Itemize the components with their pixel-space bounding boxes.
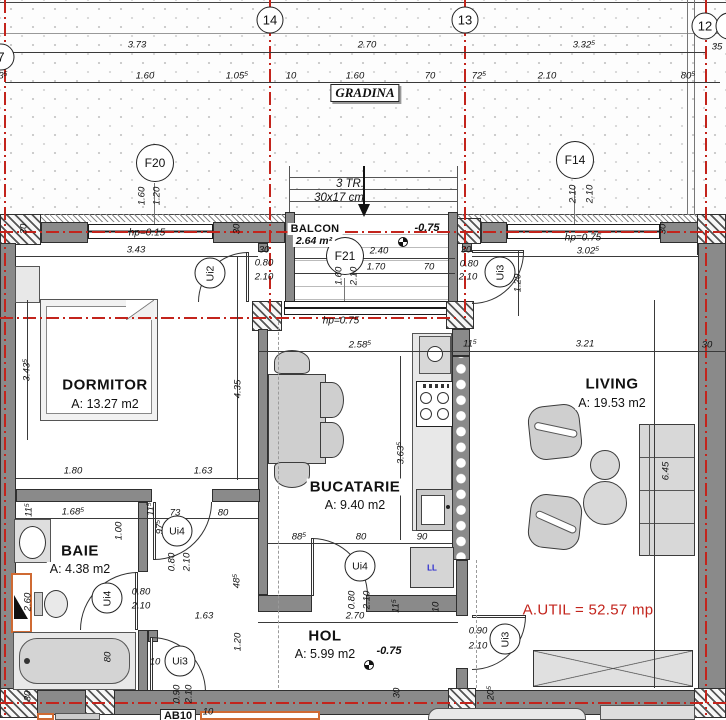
window-F21 xyxy=(284,301,448,315)
dim-label: 11⁵ xyxy=(391,599,402,613)
dim-label: 10 xyxy=(286,71,297,82)
grid-bubble-label: 12 xyxy=(698,19,712,34)
door-tag-label: Ui4 xyxy=(352,560,368,572)
garden-fence-line xyxy=(687,0,688,215)
door-tag-Ui4: Ui4 xyxy=(92,583,123,614)
level-marker xyxy=(398,237,408,247)
kitchen-sink-basin xyxy=(421,495,445,525)
note-ab: AB10 xyxy=(160,709,196,720)
dim-label: 0.80 xyxy=(132,587,151,598)
dim-label: 30 xyxy=(232,224,243,235)
dim-label: 30 xyxy=(392,688,403,699)
dim-line xyxy=(16,478,258,479)
dim-label: 0.90 xyxy=(172,685,183,704)
burner xyxy=(420,408,432,420)
room-name: LIVING xyxy=(582,376,641,393)
insulation-band xyxy=(458,214,726,222)
dim-label: 2.10 xyxy=(349,267,360,286)
tv-cabinet xyxy=(533,650,693,687)
dim-label: 20⁵ xyxy=(486,686,497,701)
dim-label: 1.20 xyxy=(233,633,244,652)
red-axis-bottom-wall xyxy=(0,702,726,704)
side-table xyxy=(590,450,620,480)
dim-line xyxy=(258,351,726,352)
room-name: DORMITOR xyxy=(59,377,150,394)
burner xyxy=(420,392,432,404)
dim-label: 30 xyxy=(19,224,30,235)
room-area: A: 19.53 m2 xyxy=(575,396,648,410)
faucet-dot xyxy=(446,505,450,509)
dim-label: 35 xyxy=(712,42,723,53)
dim-label: 30 xyxy=(259,245,270,256)
room-area: A: 13.27 m2 xyxy=(68,397,141,411)
door-tag-Ui2: Ui2 xyxy=(195,258,226,289)
wall-pier xyxy=(446,301,474,329)
armchair-cushion xyxy=(534,510,577,535)
exterior-wall-right xyxy=(698,243,726,692)
dim-label: 10 xyxy=(431,602,442,613)
dim-label: 72⁵ xyxy=(472,71,487,82)
dim-label: 70 xyxy=(425,71,436,82)
dim-label: 2.10 xyxy=(184,685,195,704)
dim-label: 1.20 xyxy=(152,187,163,206)
dim-line xyxy=(267,543,452,544)
side-table xyxy=(583,481,627,525)
wall-kitchen-living xyxy=(452,356,470,560)
chair xyxy=(320,382,344,418)
dim-label: 3.63⁵ xyxy=(396,442,407,464)
dim-label: 1.80 xyxy=(64,466,83,477)
chair xyxy=(274,350,310,374)
window-tag-label: F14 xyxy=(565,153,586,167)
door-tag-label: Ui4 xyxy=(169,525,185,537)
door-leaf-ui3-top xyxy=(472,250,524,253)
window-tag-F14: F14 xyxy=(556,141,594,179)
dim-label: 3.02⁵ xyxy=(577,246,599,257)
door-tag-label: Ui3 xyxy=(499,631,511,647)
note-hp: hp=0.75 xyxy=(323,316,359,327)
beam-projection-line xyxy=(476,560,477,688)
grid-bubble-14: 14 xyxy=(257,7,284,34)
beam-projection-line xyxy=(278,322,279,688)
dim-label: 2.10 xyxy=(182,553,193,572)
door-tag-Ui3: Ui3 xyxy=(490,624,521,655)
orange-box-partial xyxy=(37,713,54,720)
dim-label: 1.70 xyxy=(367,262,386,273)
room-name: BALCON xyxy=(288,223,343,235)
door-tag-Ui3: Ui3 xyxy=(165,646,196,677)
dim-label: 2.10 xyxy=(132,601,151,612)
sofa xyxy=(639,424,695,556)
dim-line xyxy=(295,273,455,274)
note-gradina: GRADINA xyxy=(330,84,399,102)
grid-bubble-12: 12 xyxy=(692,13,719,40)
dim-label: 30 xyxy=(461,245,472,256)
terrace-edge-line xyxy=(0,33,726,34)
dim-label: 80 xyxy=(218,508,229,519)
wall-dormitor-kitchen xyxy=(258,329,268,595)
dim-label: 3.73 xyxy=(128,40,147,51)
dim-label: 11⁵ xyxy=(463,339,477,350)
toilet-bowl xyxy=(44,590,68,618)
dim-label: 0.80 xyxy=(460,259,479,270)
dim-label: 1.63 xyxy=(194,466,213,477)
room-name: BUCATARIE xyxy=(307,479,404,496)
door-tag-label: Ui3 xyxy=(172,655,188,667)
armchair xyxy=(526,492,583,551)
room-name: HOL xyxy=(305,628,344,645)
note-hp: hp=0.75 xyxy=(565,233,601,244)
dim-label: 0.80 xyxy=(167,553,178,572)
door-tag-label: Ui4 xyxy=(101,590,113,606)
dim-line xyxy=(5,82,720,83)
dim-label: 0.80 xyxy=(347,591,358,610)
stair-arrow-head xyxy=(358,204,370,217)
dim-label: 2.70 xyxy=(358,40,377,51)
wall-kitchen-hol xyxy=(258,595,312,612)
grid-bubble-label: 14 xyxy=(263,13,277,28)
red-axis-mid-wall xyxy=(0,317,458,319)
nightstand xyxy=(15,266,40,303)
door-tag-label: Ui2 xyxy=(204,265,216,281)
dim-label: 30 xyxy=(658,224,669,235)
dim-label: 2.60 xyxy=(23,593,34,612)
door-tag-Ui3: Ui3 xyxy=(485,257,516,288)
armchair-cushion xyxy=(533,421,578,438)
bathtub-drain xyxy=(24,658,30,664)
grid-bubble-label: 7 xyxy=(0,50,5,65)
dim-label: 3⁵ xyxy=(0,71,8,82)
sink-basin xyxy=(19,526,46,559)
grid-axis-7 xyxy=(4,0,6,715)
dim-label: 2.58⁵ xyxy=(349,340,371,351)
dim-label: 1.20 xyxy=(513,274,524,293)
dim-label: 1.60 xyxy=(334,267,345,286)
dim-line-v xyxy=(654,300,655,688)
grid-bubble-label: 13 xyxy=(458,13,472,28)
dim-label: 3.21 xyxy=(576,339,595,350)
wall-baie-right xyxy=(138,630,148,692)
dim-label: 1.60 xyxy=(346,71,365,82)
dim-label: 70 xyxy=(424,262,435,273)
fridge-circle xyxy=(427,346,443,362)
red-axis-top-wall xyxy=(0,231,726,233)
dim-label: 2.10 xyxy=(362,591,373,610)
partial-fixture xyxy=(55,713,100,720)
level-marker xyxy=(364,660,374,670)
door-leaf-ui2 xyxy=(246,252,249,302)
room-area: A: 5.99 m2 xyxy=(292,647,358,661)
stove-knobs xyxy=(423,384,449,388)
dim-label: 1.60 xyxy=(137,187,148,206)
dim-label: 3.43⁵ xyxy=(22,359,33,381)
grid-axis-12 xyxy=(705,0,707,715)
dim-line-v xyxy=(237,256,238,480)
dim-label: 2.10 xyxy=(568,185,579,204)
dim-line xyxy=(5,52,705,53)
door-tag-Ui4: Ui4 xyxy=(345,551,376,582)
dim-label: 2.10 xyxy=(459,272,478,283)
door-tag-Ui4: Ui4 xyxy=(162,516,193,547)
dim-label: 2.10 xyxy=(585,185,596,204)
dim-label: 30 xyxy=(702,340,713,351)
dim-label: 1.60 xyxy=(136,71,155,82)
chair xyxy=(274,462,310,488)
armchair xyxy=(526,402,583,461)
floor-plan: 7141312F20F14F21Ui2Ui3Ui4Ui4Ui4Ui3Ui3DOR… xyxy=(0,0,726,720)
dim-label: 1.68⁵ xyxy=(62,507,84,518)
sofa-front-line xyxy=(649,424,650,556)
dim-label: 73 xyxy=(170,508,181,519)
dim-label: 4.35 xyxy=(233,380,244,399)
note-autil: A.UTIL = 52.57 mp xyxy=(523,602,654,619)
dim-label: 10 xyxy=(150,657,161,668)
dim-label: 80 xyxy=(356,532,367,543)
burner xyxy=(437,408,449,420)
dim-label: 11⁵ xyxy=(146,502,157,516)
note-level: -0.75 xyxy=(414,222,439,234)
dim-label: 1.00 xyxy=(114,522,125,541)
window-tag-label: F21 xyxy=(335,249,356,263)
dim-label: 88⁵ xyxy=(292,532,307,543)
dim-label: 1.05⁵ xyxy=(226,71,248,82)
dim-label: 0.90 xyxy=(469,626,488,637)
note-level: -0.75 xyxy=(376,645,401,657)
grid-bubble-13: 13 xyxy=(452,7,479,34)
orange-box-partial xyxy=(200,711,320,720)
insulation-band xyxy=(0,214,285,222)
toilet-tank xyxy=(34,592,43,616)
dim-label: 80 xyxy=(103,652,114,663)
dim-label: 2.70 xyxy=(346,611,365,622)
dim-label: 0.80 xyxy=(255,258,274,269)
dim-label: 80⁵ xyxy=(681,71,696,82)
exterior-stairs xyxy=(289,166,458,213)
note-stair: 30x17 cm xyxy=(314,192,364,204)
dim-label: 48⁵ xyxy=(232,574,243,589)
dim-label: 2.10 xyxy=(469,641,488,652)
room-area: 2.64 m² xyxy=(293,235,335,247)
window-tag-label: F20 xyxy=(145,156,166,170)
room-name: BAIE xyxy=(58,543,102,560)
note-hp: hp=0.15 xyxy=(129,228,165,239)
chair xyxy=(320,422,344,458)
wall-kitchen-hol xyxy=(366,595,458,612)
dim-line xyxy=(16,256,258,257)
note-stair: 3 TR. xyxy=(336,178,364,190)
dim-label: 2.40 xyxy=(370,246,389,257)
site-border-line xyxy=(0,2,726,3)
dim-label: 11⁵ xyxy=(24,503,35,517)
dim-label: 2.10 xyxy=(255,272,274,283)
dim-line xyxy=(295,258,455,259)
door-leaf-ui3-living xyxy=(472,615,526,618)
dim-label: 10 xyxy=(203,707,214,718)
partial-fixture xyxy=(600,705,695,720)
dim-label: 6.45 xyxy=(661,462,672,481)
dim-label: 1.63 xyxy=(195,611,214,622)
dim-line xyxy=(258,622,458,623)
dim-label: 97⁵ xyxy=(155,520,166,535)
window-tag-F20: F20 xyxy=(136,144,174,182)
door-tag-label: Ui3 xyxy=(494,264,506,280)
wall-living-left xyxy=(456,560,468,616)
wall-dormitor-bottom xyxy=(16,489,152,502)
burner xyxy=(437,392,449,404)
dim-label: 30 xyxy=(23,691,34,702)
partial-fixture xyxy=(428,708,586,720)
door-leaf-ui4-kitchen xyxy=(311,538,314,596)
dim-label: 3.32⁵ xyxy=(573,40,595,51)
wall-dormitor-bottom xyxy=(212,489,260,502)
room-area: A: 9.40 m2 xyxy=(322,498,388,512)
dining-table xyxy=(268,374,326,464)
dim-label: 2.10 xyxy=(538,71,557,82)
room-area: A: 4.38 m2 xyxy=(47,562,113,576)
dim-label: 3.43 xyxy=(127,245,146,256)
dim-label: 90 xyxy=(417,532,428,543)
note-ll: LL xyxy=(427,564,437,573)
